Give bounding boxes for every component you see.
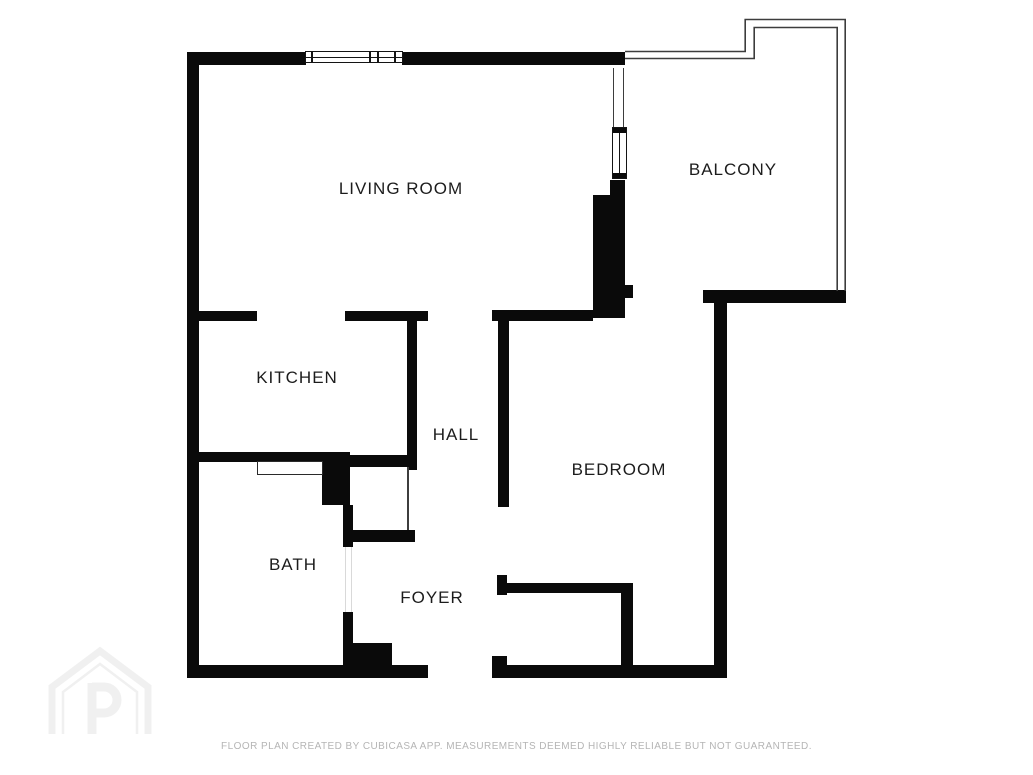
room-label-living-room: LIVING ROOM [339, 179, 463, 199]
wall-bath-corner-chunk [322, 452, 350, 505]
wall-hall-closet-bottom [350, 530, 415, 542]
wall-balcony-column-stub [625, 285, 633, 298]
wall-hall-closet-top [350, 455, 415, 467]
bath-door-jamb [345, 547, 346, 612]
room-label-balcony: BALCONY [689, 160, 777, 180]
hall-closet-opening-line [407, 467, 409, 530]
wall-bedroom-right [714, 290, 727, 678]
room-label-foyer: FOYER [400, 588, 464, 608]
wall-balcony-column-thin [610, 180, 625, 196]
window-divider [377, 52, 379, 62]
wall-kitchen-hall [407, 311, 417, 470]
wall-outer-top-left [187, 52, 306, 65]
wall-outer-top-right [402, 52, 625, 65]
window-divider [311, 52, 313, 62]
window-divider [369, 52, 371, 62]
balcony-window-icon [612, 127, 627, 179]
wall-livingroom-bottom-a [199, 311, 257, 321]
window-cap [613, 173, 626, 178]
window-midline [619, 133, 620, 173]
wall-outer-left [187, 52, 199, 678]
bath-door-jamb [351, 547, 352, 612]
wall-entry-door-stub [492, 656, 507, 666]
kitchen-door-leaf [257, 461, 323, 475]
disclaimer-text: FLOOR PLAN CREATED BY CUBICASA APP. MEAS… [0, 741, 1033, 752]
wall-bath-right-upper [343, 505, 353, 547]
wall-hall-bedroom [498, 315, 509, 507]
balcony-door-edge [613, 68, 614, 127]
window-divider [394, 52, 396, 62]
wall-bedroom-closet-top [502, 583, 633, 593]
room-label-bath: BATH [269, 555, 317, 575]
cubicasa-logo-watermark-icon [42, 643, 158, 737]
balcony-railing [0, 0, 1033, 775]
wall-bedroom-closet-right [621, 583, 633, 671]
room-label-hall: HALL [433, 425, 480, 445]
room-label-bedroom: BEDROOM [572, 460, 667, 480]
living-room-top-window-icon [305, 51, 403, 63]
room-label-kitchen: KITCHEN [256, 368, 338, 388]
wall-outer-bottom-right [492, 665, 727, 678]
wall-balcony-column-wide [593, 195, 625, 318]
balcony-door-edge [623, 68, 624, 127]
floor-plan-canvas: LIVING ROOM BALCONY KITCHEN HALL BEDROOM… [0, 0, 1033, 775]
wall-foyer-step [350, 643, 392, 667]
window-midline [306, 57, 402, 58]
